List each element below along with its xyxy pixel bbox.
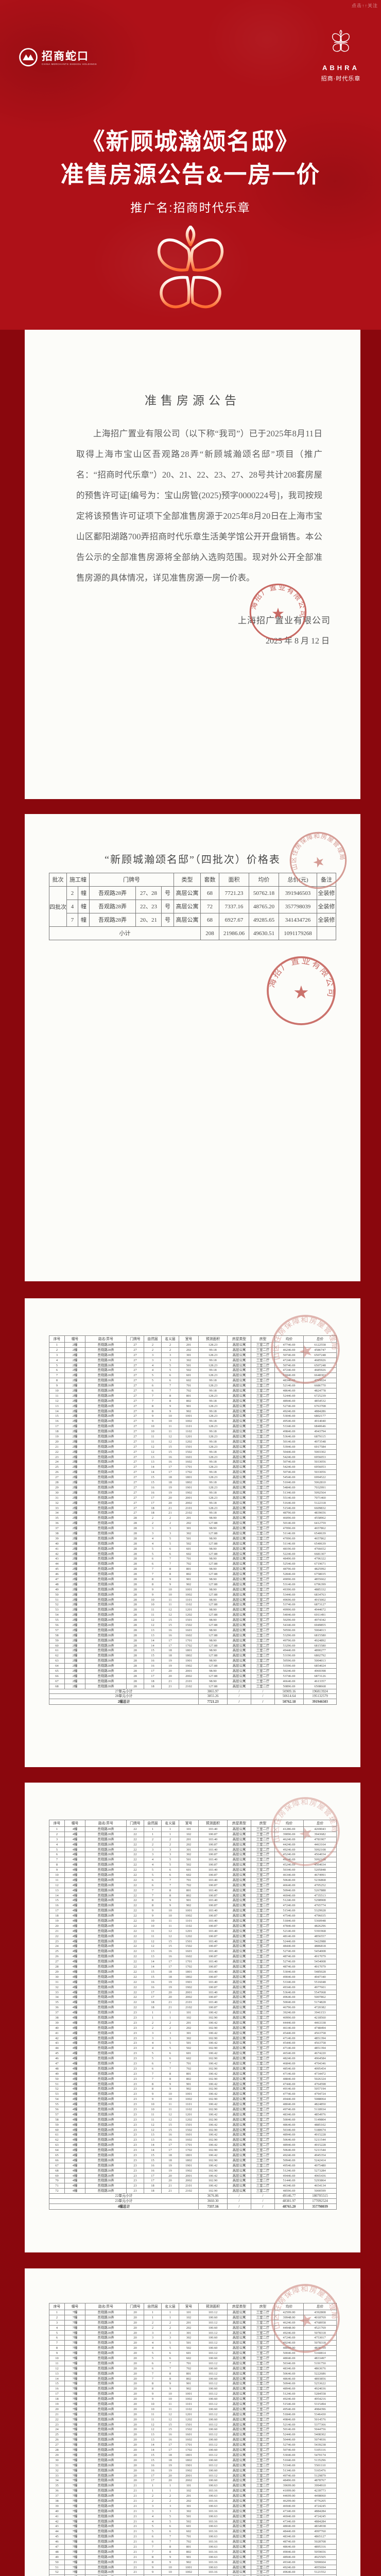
table-cell: 三室二厅: [251, 2178, 275, 2183]
table-cell: 35: [49, 2483, 65, 2488]
table-row: 382幢吾观路28弄2833302127.88高层公寓三室二厅51146.696…: [49, 1531, 337, 1536]
table-cell: 4498060: [304, 2494, 337, 2499]
table-cell: 15: [162, 1450, 179, 1455]
table-cell: 601: [179, 2051, 199, 2056]
table-row: 504幢吾观路28弄2378802102.90高层公寓三室二厅48846.695…: [49, 2077, 337, 2082]
table-cell: 2幢: [65, 1383, 85, 1388]
table-cell: 18: [144, 1679, 162, 1684]
table-cell: 高层公寓: [228, 2381, 251, 2386]
table-cell: 28: [127, 1521, 144, 1526]
table-cell: 41: [49, 1547, 65, 1552]
scanned-page-price-list-3: 序号幢号路名/弄号门牌号自然层名义层室号预测面积房屋类型房型均价总价17幢吾观路…: [25, 2268, 360, 2576]
table-cell: 50046.69: [275, 2000, 304, 2005]
table-cell: 102.90: [199, 2148, 228, 2153]
table-cell: 17: [162, 1470, 179, 1475]
table-cell: 2幢: [65, 1541, 85, 1547]
table-cell: 房屋类型: [228, 1820, 251, 1827]
table-cell: 吾观路28弄: [85, 1429, 127, 1434]
table-cell: 127.88: [199, 1592, 228, 1598]
table-row: 377幢吾观路28弄2122201100.63高层公寓三室二厅44699.004…: [49, 2494, 337, 2499]
table-row: 142幢吾观路28弄278990299.18高层公寓三室二厅49246.6948…: [49, 1409, 337, 1414]
table-cell: 三室二厅: [251, 1857, 275, 1862]
table-cell: 23: [127, 2087, 144, 2092]
table-cell: 29: [49, 1485, 65, 1490]
table-cell: 三室二厅: [251, 1607, 275, 1613]
table-cell: 127.88: [199, 1613, 228, 1618]
table-cell: 53046.69: [275, 2453, 304, 2458]
table-cell: 7幢: [65, 2407, 85, 2412]
table-cell: 15: [49, 1414, 65, 1419]
table-cell: 三室二厅: [251, 2565, 275, 2570]
table-cell: 50614.64: [275, 1694, 304, 1699]
table-cell: 128.23: [199, 1485, 228, 1490]
table-cell: 23: [127, 2092, 144, 2097]
table-cell: 102.90: [199, 2107, 228, 2112]
table-cell: 7071460: [304, 1496, 337, 1501]
table-cell: 128.23: [199, 1383, 228, 1388]
table-cell: 吾观路28弄: [85, 2570, 127, 2575]
table-cell: 49446.69: [275, 1648, 304, 1653]
table-row: 432幢吾观路28弄286770198.90高层公寓三室二厅48496.6947…: [49, 1556, 337, 1562]
table-cell: 吾观路28弄: [85, 2381, 127, 2386]
table-cell: 吾观路28弄: [85, 2036, 127, 2041]
table-cell: 高层公寓: [228, 1521, 251, 1526]
table-cell: 50046.69: [275, 2117, 304, 2123]
table-row: 177幢吾观路28弄209101001103.12高层公寓三室二厅51246.6…: [49, 2392, 337, 2397]
table-cell: 高层公寓: [228, 1424, 251, 1429]
table-cell: 5: [144, 1378, 162, 1383]
table-cell: 35: [49, 2000, 65, 2005]
table-cell: 15: [49, 1898, 65, 1903]
table-cell: 702: [179, 1883, 199, 1888]
table-cell: 53946.69: [275, 1445, 304, 1450]
table-row: 437幢吾观路28弄2156601100.63高层公寓三室二厅48046.694…: [49, 2524, 337, 2529]
table-cell: 三室二厅: [251, 2341, 275, 2346]
table-row: 322幢吾观路28弄271720200299.18高层公寓三室二厅51646.6…: [49, 1501, 337, 1506]
table-cell: 1: [49, 2310, 65, 2315]
table-cell: 22: [127, 1852, 144, 1857]
brand-chinese-name: 招商·时代乐章: [311, 74, 371, 82]
table-cell: 19: [49, 1434, 65, 1439]
table-cell: 9: [162, 1404, 179, 1409]
table-cell: 2幢: [65, 1388, 85, 1394]
table-cell: 三室二厅: [251, 2168, 275, 2174]
table-cell: 28: [127, 1674, 144, 1679]
table-cell: 吾观路28弄: [85, 1623, 127, 1628]
table-cell: 4954216: [304, 2397, 337, 2402]
table-cell: 12: [144, 1618, 162, 1623]
table-cell: 4幢: [65, 2183, 85, 2189]
table-row: 7幢吾观路28弄20、21号高层公寓686927.6749285.6534143…: [67, 913, 336, 927]
table-cell: 三室二厅: [251, 2163, 275, 2168]
table-cell: 4974342: [304, 1618, 337, 1623]
table-cell: 三室二厅: [251, 2117, 275, 2123]
table-cell: 43: [49, 2041, 65, 2046]
table-cell: 72: [201, 900, 219, 913]
table-cell: 52: [49, 1602, 65, 1607]
table-cell: 4925505: [304, 2555, 337, 2560]
table-cell: 102.90: [199, 2015, 228, 2021]
table-cell: 幢号: [65, 1820, 85, 1827]
table-cell: 100.42: [199, 2010, 228, 2015]
follow-note[interactable]: 点击↑↑关注: [352, 2, 378, 9]
table-cell: 1602: [179, 2437, 199, 2443]
table-cell: 100.42: [199, 2123, 228, 2128]
table-cell: 103.40: [199, 1949, 228, 1954]
table-cell: 7幢: [65, 2361, 85, 2366]
table-cell: 1901: [179, 1980, 199, 1985]
table-row: 534幢吾观路28弄239101001100.42高层公寓三室二厅47746.6…: [49, 2092, 337, 2097]
table-cell: 三室二厅: [251, 1975, 275, 1980]
table-cell: 三室二厅: [251, 2509, 275, 2514]
table-cell: 三室二厅: [251, 2560, 275, 2565]
table-cell: 7幢: [65, 2524, 85, 2529]
table-cell: 高层公寓: [228, 1613, 251, 1618]
table-cell: 49: [49, 2555, 65, 2560]
table-cell: 8: [144, 1903, 162, 1908]
table-cell: 吾观路28弄: [85, 1348, 127, 1353]
table-cell: 吾观路28弄: [85, 2082, 127, 2087]
table-cell: 2幢: [65, 1618, 85, 1623]
table-cell: 22: [127, 2000, 144, 2005]
table-cell: 901: [179, 1898, 199, 1903]
table-cell: 11: [49, 2361, 65, 2366]
table-cell: 62: [49, 1653, 65, 1658]
table-cell: 7幢: [65, 2560, 85, 2565]
table-cell: 49846.69: [275, 2417, 304, 2422]
table-cell: 51446.69: [275, 2178, 304, 2183]
table-cell: 18: [162, 1653, 179, 1658]
table-cell: 高层公寓: [228, 2015, 251, 2021]
table-cell: 高层公寓: [228, 2499, 251, 2504]
table-cell: 三室二厅: [251, 2174, 275, 2179]
svg-text:★: ★: [296, 2309, 316, 2331]
table-cell: 32: [49, 2468, 65, 2473]
table-cell: 三室二厅: [251, 2499, 275, 2504]
table-row: 324幢吾观路28弄2216191902100.87高层公寓三室二厅49346.…: [49, 1985, 337, 1990]
table-cell: 1002: [179, 2097, 199, 2102]
table-cell: 43: [49, 1556, 65, 1562]
table-cell: 102.90: [199, 2077, 228, 2082]
table-cell: 14: [49, 1893, 65, 1899]
table-cell: 302: [179, 2509, 199, 2514]
table-cell: 高层公寓: [228, 2128, 251, 2133]
table-cell: 6: [162, 2356, 179, 2361]
table-cell: 吾观路28弄: [85, 2412, 127, 2417]
table-cell: 1: [144, 2310, 162, 2315]
table-cell: 高层公寓: [228, 2494, 251, 2499]
table-cell: 48946.69: [275, 1399, 304, 1404]
table-cell: 7: [162, 2361, 179, 2366]
table-cell: 三室二厅: [251, 1562, 275, 1567]
table-cell: 48346.69: [275, 2112, 304, 2117]
table-cell: /: [251, 2194, 275, 2199]
table-cell: 18: [162, 1975, 179, 1980]
table-cell: 12: [162, 2112, 179, 2117]
table-cell: 高层公寓: [228, 2397, 251, 2402]
table-cell: 56: [49, 2107, 65, 2112]
table-cell: 4幢: [65, 1949, 85, 1954]
table-cell: 4724245: [304, 2504, 337, 2509]
table-cell: 吾观路28弄: [85, 2463, 127, 2468]
table-cell: 4558962: [304, 1516, 337, 1521]
table-cell: 6802792: [304, 1653, 337, 1658]
table-cell: 4: [144, 2046, 162, 2051]
table-cell: 高层公寓: [228, 2138, 251, 2143]
table-row: 112幢吾观路28弄2778801128.23高层公寓三室二厅52446.696…: [49, 1394, 337, 1399]
table-cell: 99.18: [199, 1399, 228, 1404]
table-cell: 10: [162, 2097, 179, 2102]
table-cell: 100.42: [199, 2163, 228, 2168]
table-cell: 小计: [49, 927, 201, 940]
table-cell: 吾观路28弄: [85, 1929, 127, 1934]
table-cell: 4834938: [304, 2524, 337, 2529]
table-cell: 4657862: [304, 1536, 337, 1541]
table-cell: 吾观路28弄: [85, 2331, 127, 2336]
table-cell: 801: [179, 2072, 199, 2077]
table-cell: 17: [49, 2392, 65, 2397]
table-cell: 4: [144, 2041, 162, 2046]
table-cell: 99.18: [199, 1409, 228, 1414]
table-cell: 103.40: [199, 1868, 228, 1873]
table-cell: 高层公寓: [228, 1638, 251, 1643]
table-cell: 201: [179, 2320, 199, 2326]
table-cell: 吾观路28弄: [85, 1857, 127, 1862]
table-cell: 47146.69: [275, 2046, 304, 2051]
table-cell: 2: [144, 1343, 162, 1348]
table-cell: 52446.69: [275, 2432, 304, 2437]
table-cell: 三室二厅: [251, 2132, 275, 2138]
table-cell: 23: [49, 1939, 65, 1944]
table-cell: 吾观路28弄: [85, 1598, 127, 1603]
table-cell: 602: [179, 2356, 199, 2361]
table-cell: 1002: [179, 1913, 199, 1919]
table-cell: 高层公寓: [228, 1959, 251, 1964]
table-cell: 12: [144, 1623, 162, 1628]
table-cell: 1502: [179, 1623, 199, 1628]
table-cell: 802: [179, 2077, 199, 2082]
table-cell: 吾观路28弄: [85, 1587, 127, 1592]
table-cell: 63: [49, 1658, 65, 1664]
table-cell: 28: [127, 1684, 144, 1689]
table-cell: 高层公寓: [228, 1939, 251, 1944]
table-cell: 11: [162, 1429, 179, 1434]
table-cell: 三室二厅: [251, 2519, 275, 2524]
table-row: 652幢吾观路28弄281720200198.90高层公寓三室二厅50246.6…: [49, 1669, 337, 1674]
table-cell: 69: [49, 2174, 65, 2179]
table-cell: 302: [179, 2335, 199, 2341]
table-cell: 吾观路28弄: [85, 2102, 127, 2107]
table-cell: 501: [179, 1857, 199, 1862]
table-cell: /: [228, 2194, 251, 2199]
table-cell: 高层公寓: [228, 1439, 251, 1445]
table-cell: 12: [162, 1613, 179, 1618]
table-cell: 7幢: [65, 2499, 85, 2504]
table-cell: 20: [162, 2473, 179, 2479]
table-cell: 吾观路28弄: [85, 2397, 127, 2402]
table-cell: 15: [144, 2153, 162, 2158]
table-cell: 27: [127, 1388, 144, 1394]
table-cell: 99.18: [199, 1429, 228, 1434]
table-cell: 2幢: [65, 1526, 85, 1531]
table-cell: 16: [162, 1949, 179, 1954]
table-cell: 高层公寓: [228, 1888, 251, 1893]
table-cell: 100.63: [199, 2483, 228, 2488]
table-cell: 高层公寓: [228, 1496, 251, 1501]
table-cell: 802: [179, 1893, 199, 1899]
table-cell: 1: [162, 2483, 179, 2488]
table-row: 562幢吾观路28弄2812151502127.88高层公寓三室二厅54346.…: [49, 1623, 337, 1628]
china-merchants-logo: 招商蛇口 CHINA MERCHANTS SHEKOU HOLDINGS: [19, 47, 97, 70]
table-cell: 50946.69: [275, 2158, 304, 2163]
table-cell: 100.60: [199, 2386, 228, 2392]
table-cell: 吾观路28弄: [85, 1572, 127, 1577]
table-cell: 47: [49, 2545, 65, 2550]
table-cell: 21: [162, 2183, 179, 2189]
table-row: 312幢吾观路28弄2717202001128.23高层公寓三室二厅55146.…: [49, 1496, 337, 1501]
table-cell: 吾观路28弄: [85, 2107, 127, 2112]
table-cell: 17: [144, 1990, 162, 1995]
table-cell: 19: [162, 1490, 179, 1496]
table-cell: 34: [49, 2478, 65, 2483]
table-cell: 5293864: [304, 2178, 337, 2183]
table-cell: 17: [144, 2478, 162, 2483]
table-cell: 3: [144, 2331, 162, 2336]
table-cell: 4724245: [304, 2514, 337, 2519]
table-cell: 2幢: [65, 1607, 85, 1613]
table-cell: 127.88: [199, 1531, 228, 1536]
table-cell: 3: [49, 1353, 65, 1358]
table-cell: 100.87: [199, 1995, 228, 2000]
table-cell: 三室二厅: [251, 1414, 275, 1419]
table-cell: 高层公寓: [228, 1526, 251, 1531]
table-cell: 吾观路28弄: [85, 2163, 127, 2168]
table-cell: 吾观路28弄: [85, 1394, 127, 1399]
table-cell: 2: [49, 2315, 65, 2320]
table-cell: 103.40: [199, 1837, 228, 1842]
table-cell: 22: [127, 1975, 144, 1980]
table-row: 582幢吾观路28弄2813161602127.88高层公寓三室二厅53296.…: [49, 1633, 337, 1638]
table-cell: 22: [127, 1837, 144, 1842]
lotus-icon: [326, 52, 356, 60]
table-cell: 4924036: [304, 2386, 337, 2392]
table-cell: 27: [127, 1394, 144, 1399]
table-cell: 6956053: [304, 1455, 337, 1460]
table-cell: 5273284: [304, 2168, 337, 2174]
table-cell: 21: [162, 1511, 179, 1516]
table-cell: 4幢: [65, 1934, 85, 1939]
table-cell: 12: [162, 2117, 179, 2123]
table-cell: 102.90: [199, 2178, 228, 2183]
scanned-page-announcement: 准售房源公告 上海招广置业有限公司（以下称“我司”）已于2025年8月11日取得…: [25, 330, 360, 799]
table-cell: 20: [127, 2377, 144, 2382]
table-cell: 吾观路28弄: [85, 1556, 127, 1562]
table-cell: 吾观路28弄: [85, 2545, 127, 2550]
table-cell: 三室二厅: [251, 1460, 275, 1465]
table-cell: 22: [127, 1913, 144, 1919]
table-cell: 10: [49, 1388, 65, 1394]
table-cell: 9: [49, 2351, 65, 2356]
company-stamp-icon: ★ 上海招广置业有限公司: [263, 952, 340, 1029]
table-cell: 48446.69: [275, 2529, 304, 2534]
table-cell: 20: [127, 2443, 144, 2448]
table-cell: 4幢: [65, 1903, 85, 1908]
table-cell: 12: [162, 1434, 179, 1439]
table-cell: 18: [144, 1511, 162, 1516]
table-cell: 702: [179, 2539, 199, 2545]
table-cell: 22: [127, 1934, 144, 1939]
table-cell: 7: [144, 2377, 162, 2382]
table-cell: 100.87: [199, 1913, 228, 1919]
table-cell: 22: [127, 1954, 144, 1959]
table-row: 237幢吾观路28弄2012151501103.12高层公寓三室二厅52146.…: [49, 2422, 337, 2428]
table-cell: 27: [127, 1348, 144, 1353]
table-cell: 7幢: [65, 2422, 85, 2428]
table-cell: 27: [127, 1470, 144, 1475]
table-row: 152幢吾观路28弄279101001128.23高层公寓三室二厅53046.6…: [49, 1414, 337, 1419]
table-cell: 吾观路28弄: [85, 2183, 127, 2189]
table-cell: 4764598: [304, 2082, 337, 2087]
table-cell: 44699.00: [275, 2494, 304, 2499]
table-cell: 4幢: [65, 2082, 85, 2087]
table-row: 427幢吾观路28弄2145502103.16高层公寓三室二厅47346.694…: [49, 2519, 337, 2524]
table-cell: 100.42: [199, 2031, 228, 2036]
table-cell: 4885102: [304, 2123, 337, 2128]
table-cell: 21: [127, 2565, 144, 2570]
table-cell: 302: [179, 1852, 199, 1857]
table-row: 477幢吾观路28弄2178801100.63高层公寓三室二厅48646.694…: [49, 2545, 337, 2550]
table-cell: 高层公寓: [228, 2021, 251, 2026]
table-cell: 55146.69: [275, 1496, 304, 1501]
table-cell: 40996.69: [275, 2015, 304, 2021]
table-cell: 98.90: [199, 1618, 228, 1623]
table-cell: 高层公寓: [228, 2443, 251, 2448]
table-cell: 室号: [179, 2303, 199, 2310]
table-cell: 三室二厅: [251, 1547, 275, 1552]
table-cell: 52546.69: [275, 1562, 304, 1567]
table-cell: 50146.69: [275, 2427, 304, 2432]
table-cell: 6: [162, 2056, 179, 2061]
table-cell: 高层公寓: [228, 1582, 251, 1587]
table-cell: 2幢: [65, 1658, 85, 1664]
table-cell: 103.12: [199, 2381, 228, 2386]
table-row: 572幢吾观路28弄281316160198.90高层公寓三室二厅50596.6…: [49, 1628, 337, 1633]
table-cell: 8: [162, 2077, 179, 2082]
table-cell: 高层公寓: [228, 1944, 251, 1949]
table-cell: 50646.69: [275, 2148, 304, 2153]
table-cell: 21: [127, 2529, 144, 2534]
table-cell: 2幢: [65, 1633, 85, 1638]
table-cell: 高层公寓: [228, 2117, 251, 2123]
table-cell: 吾观路28弄: [85, 1506, 127, 1511]
table-row: 482幢吾观路28弄2889902127.88高层公寓三室二厅53146.696…: [49, 1582, 337, 1587]
table-cell: 47146.69: [275, 2072, 304, 2077]
table-row: 672幢吾观路28弄281821210198.90高层公寓三室二厅46646.6…: [49, 1679, 337, 1684]
table-cell: 68: [49, 1684, 65, 1689]
table-cell: 高层公寓: [228, 1404, 251, 1409]
table-cell: 11: [162, 2402, 179, 2407]
table-cell: 8: [144, 1582, 162, 1587]
table-cell: 三室二厅: [251, 1485, 275, 1490]
table-cell: 50946.69: [275, 1888, 304, 1893]
table-cell: /: [228, 1689, 251, 1694]
table-cell: 98.90: [199, 1556, 228, 1562]
table-row: 184幢吾观路28弄229101002100.87高层公寓三室二厅47546.6…: [49, 1913, 337, 1919]
table-cell: 4幢: [65, 1959, 85, 1964]
table-cell: 11: [162, 1602, 179, 1607]
table-cell: 三室二厅: [251, 1959, 275, 1964]
table-cell: 7幢: [65, 2509, 85, 2514]
